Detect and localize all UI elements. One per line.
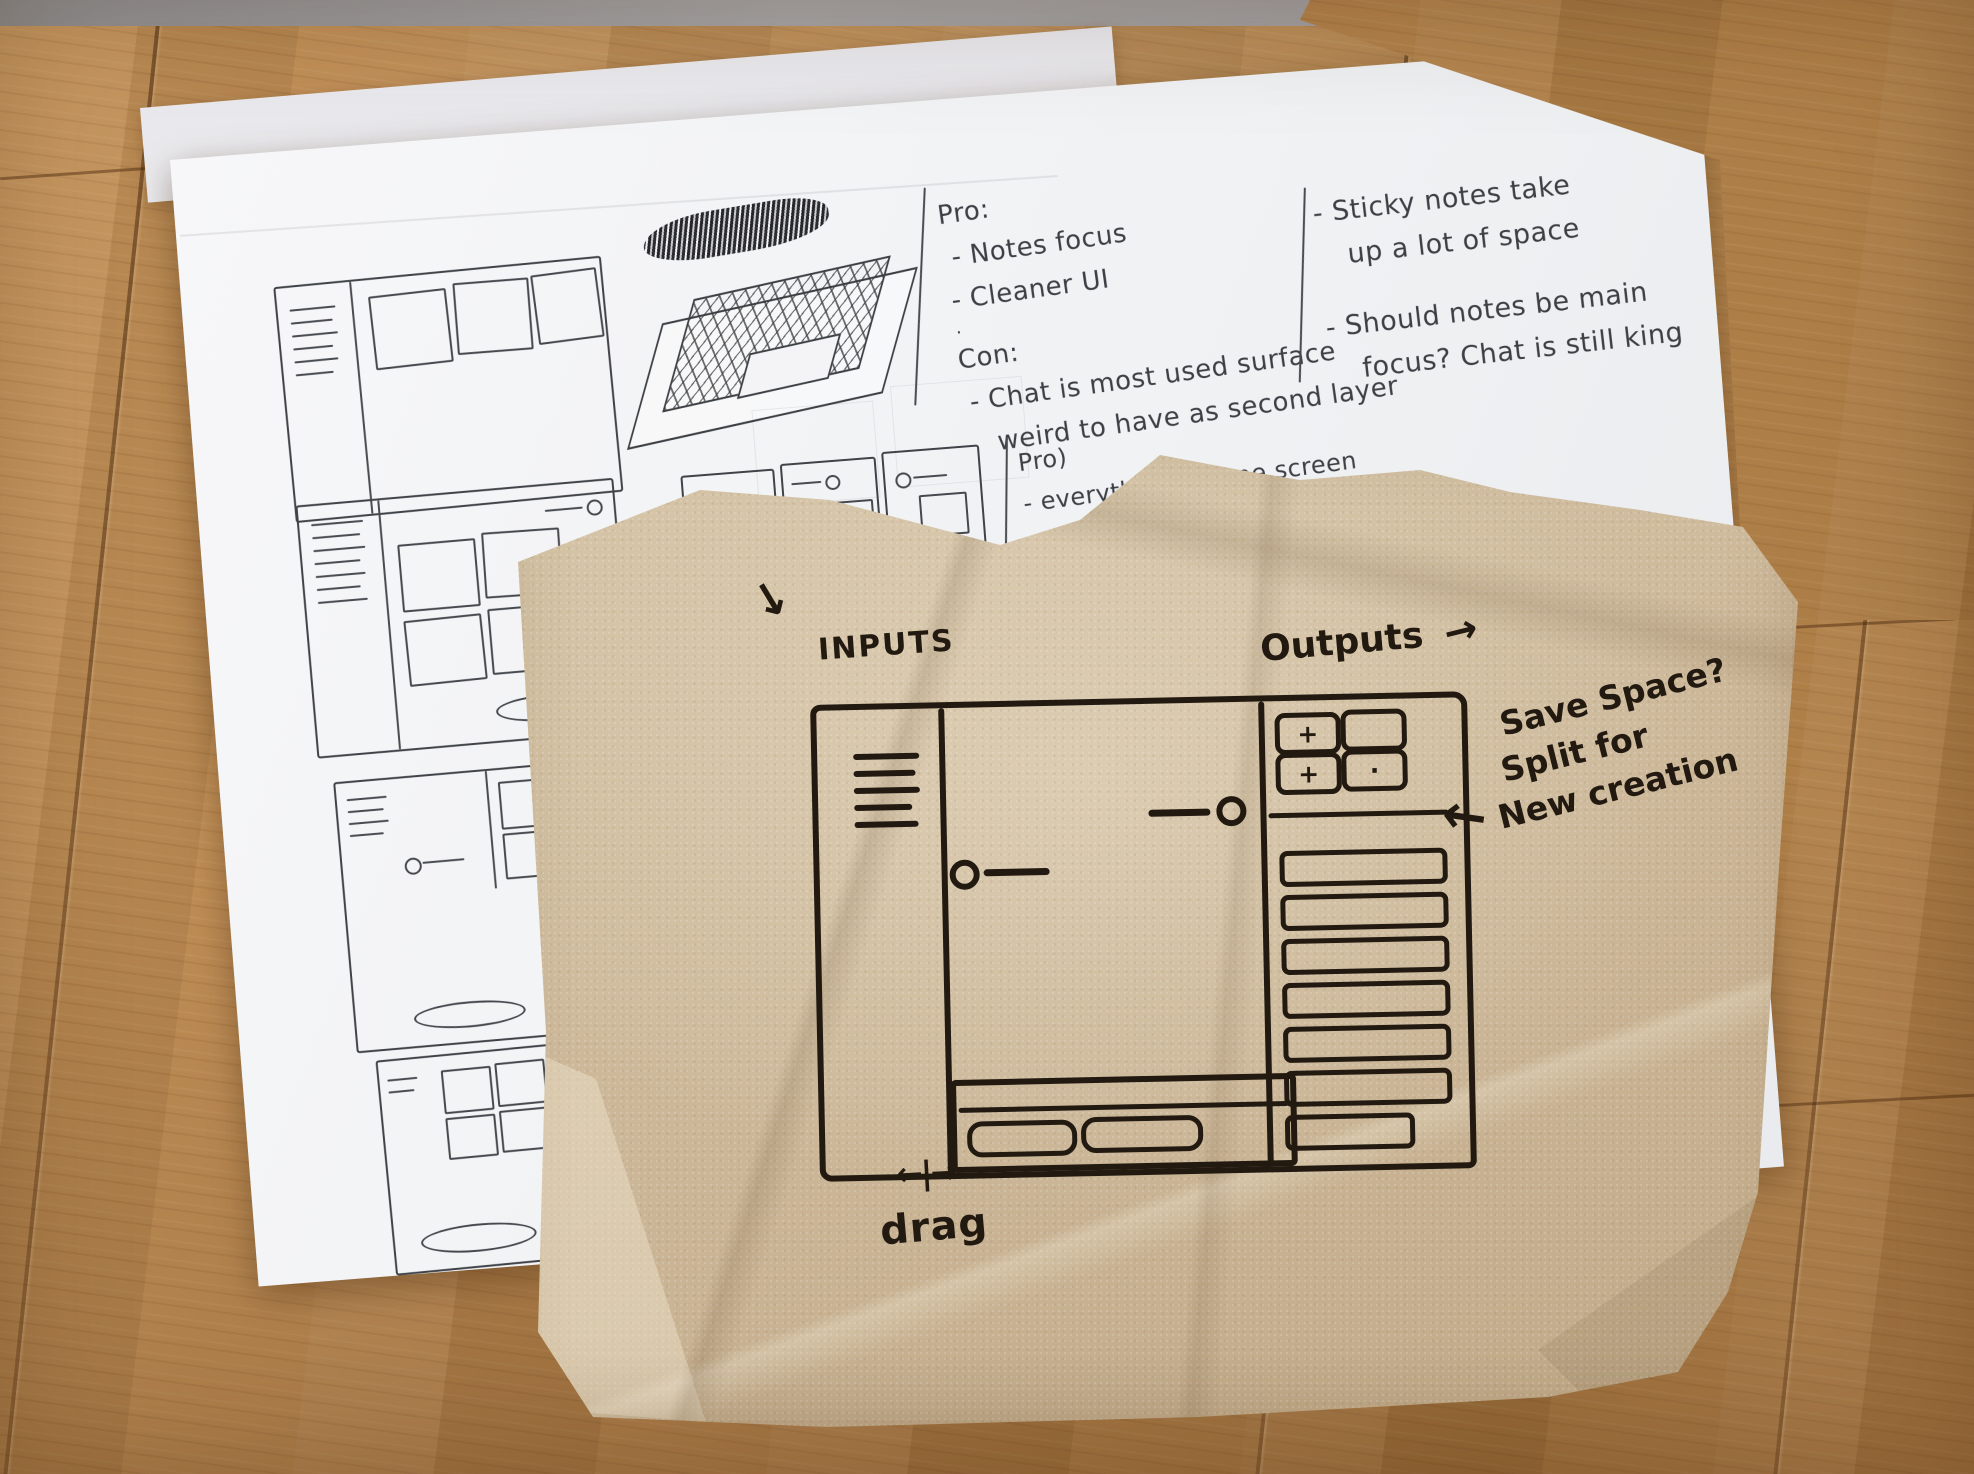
napkin: ↘ INPUTS Outputs → + (498, 432, 1800, 1432)
input-pill-sketch (413, 996, 527, 1032)
sidebar-line (349, 820, 389, 825)
toggle-dash (984, 868, 1050, 876)
toggle-circle (404, 857, 422, 875)
sidebar-line (348, 808, 384, 813)
isometric-layers-sketch (625, 187, 935, 444)
sidebar-line (316, 572, 366, 578)
pencil-ghost-box (751, 401, 880, 507)
sidebar-line (312, 533, 360, 539)
sheet-edge-hint (180, 175, 1058, 237)
toggle-dash (1148, 809, 1210, 817)
output-chip: · (1341, 748, 1408, 791)
sidebar-line (314, 559, 360, 565)
menu-line (854, 787, 920, 794)
output-list-item (1283, 1024, 1452, 1064)
content-box (530, 267, 605, 345)
content-box (368, 288, 454, 370)
content-box (441, 1066, 495, 1115)
sidebar-line (293, 345, 333, 351)
sidebar-line (292, 331, 338, 337)
arrow-left-icon: ← (1438, 781, 1492, 850)
content-box (397, 538, 481, 613)
sidebar-divider (377, 500, 401, 749)
panel-divider-line (1268, 810, 1448, 819)
plus-icon: + (1297, 719, 1319, 748)
output-list-item (1281, 936, 1450, 976)
toggle-dash (545, 507, 583, 512)
plus-icon: + (1298, 759, 1320, 788)
sidebar-line (311, 520, 363, 527)
sidebar-line (294, 357, 338, 363)
sidebar-line (289, 305, 335, 311)
drag-label: drag (878, 1199, 990, 1254)
sidebar-line (388, 1089, 414, 1093)
sidebar-line (296, 371, 334, 377)
arrow-right-icon: → (1439, 605, 1483, 658)
inputs-label: INPUTS (817, 623, 956, 667)
toggle-circle (1216, 796, 1247, 827)
menu-line (853, 770, 915, 777)
menu-line (854, 804, 912, 811)
pill-button-sketch (1081, 1115, 1204, 1154)
wood-plank-joint (0, 167, 150, 180)
composer-bar-sketch (950, 1073, 1298, 1173)
photo-scene: Pro: - Notes focus - Cleaner UI · Con: -… (0, 0, 1974, 1474)
output-list-item (1285, 1112, 1416, 1151)
sticky-notes-notes: - Sticky notes take up a lot of space - … (1311, 159, 1686, 401)
toggle-circle (949, 859, 980, 890)
sidebar-line (313, 546, 365, 553)
drag-resize-icon: ←|→ (895, 1152, 956, 1193)
content-box (494, 1059, 548, 1108)
menu-line (853, 753, 919, 760)
output-list-item (1279, 848, 1448, 888)
sidebar-line (387, 1077, 417, 1082)
toggle-dash (422, 858, 464, 864)
output-chip: + (1274, 712, 1341, 755)
content-box (403, 613, 487, 687)
output-list-item (1280, 892, 1449, 932)
sidebar-line (291, 319, 333, 325)
menu-line (855, 821, 919, 828)
output-chip (1340, 708, 1407, 751)
panel-divider (485, 771, 497, 889)
ui-frame-sketch: + + · (810, 691, 1477, 1182)
bar-divider (959, 1101, 1289, 1113)
save-space-annotation: Save Space? Split for New creation (1478, 650, 1752, 836)
content-box (452, 277, 533, 355)
output-chip: + (1275, 752, 1342, 795)
toggle-circle (586, 499, 603, 516)
sidebar-line (318, 598, 368, 604)
pencil-ghost-box (890, 376, 1030, 488)
output-list-item (1282, 980, 1451, 1020)
pill-button-sketch (967, 1119, 1078, 1157)
outputs-label: Outputs (1259, 615, 1425, 670)
content-box (445, 1113, 499, 1160)
output-list-item (1284, 1068, 1453, 1108)
sidebar-line (347, 796, 387, 801)
arrow-down-right-icon: ↘ (744, 568, 794, 630)
sidebar-line (350, 832, 384, 837)
sidebar-line (317, 585, 361, 591)
input-pill-sketch (420, 1218, 538, 1257)
dot-icon: · (1370, 756, 1380, 785)
wood-plank-seam (0, 0, 168, 1474)
